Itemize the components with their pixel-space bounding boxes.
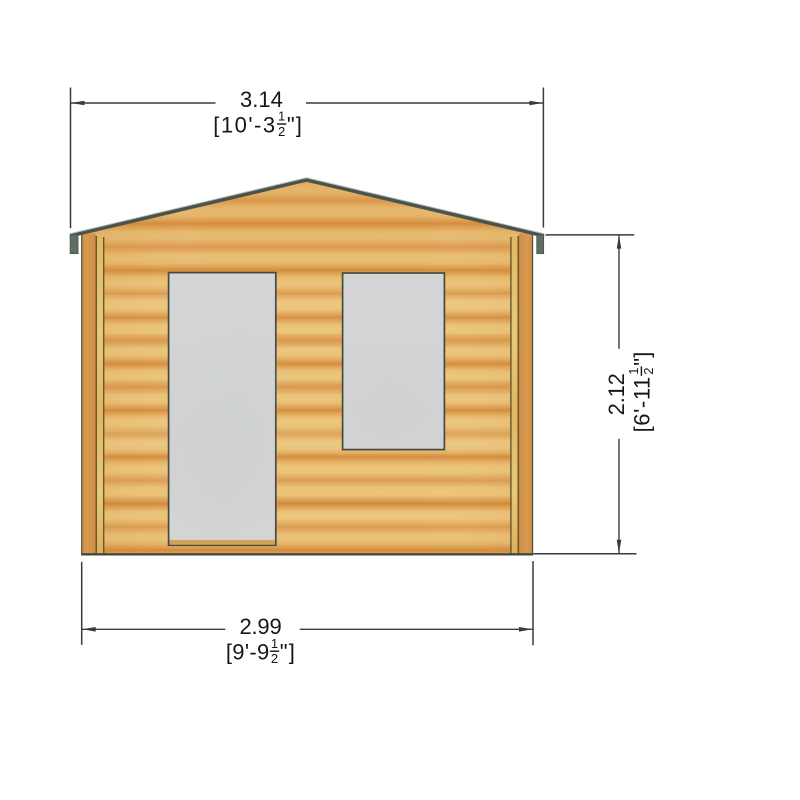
svg-text:2: 2 bbox=[641, 367, 656, 374]
svg-text:2.12: 2.12 bbox=[604, 373, 629, 415]
svg-text:[9'-9: [9'-9 bbox=[226, 640, 270, 665]
svg-text:"]: "] bbox=[287, 112, 303, 137]
svg-text:1: 1 bbox=[626, 367, 641, 374]
svg-text:3.14: 3.14 bbox=[240, 87, 283, 112]
svg-text:1: 1 bbox=[271, 636, 278, 651]
svg-text:2: 2 bbox=[271, 651, 278, 666]
svg-text:1: 1 bbox=[278, 109, 285, 124]
svg-text:2: 2 bbox=[278, 124, 285, 139]
svg-text:[10'-3: [10'-3 bbox=[213, 112, 276, 137]
svg-text:"]: "] bbox=[630, 351, 655, 366]
svg-text:"]: "] bbox=[280, 640, 296, 665]
svg-text:[6'-11: [6'-11 bbox=[630, 376, 655, 432]
